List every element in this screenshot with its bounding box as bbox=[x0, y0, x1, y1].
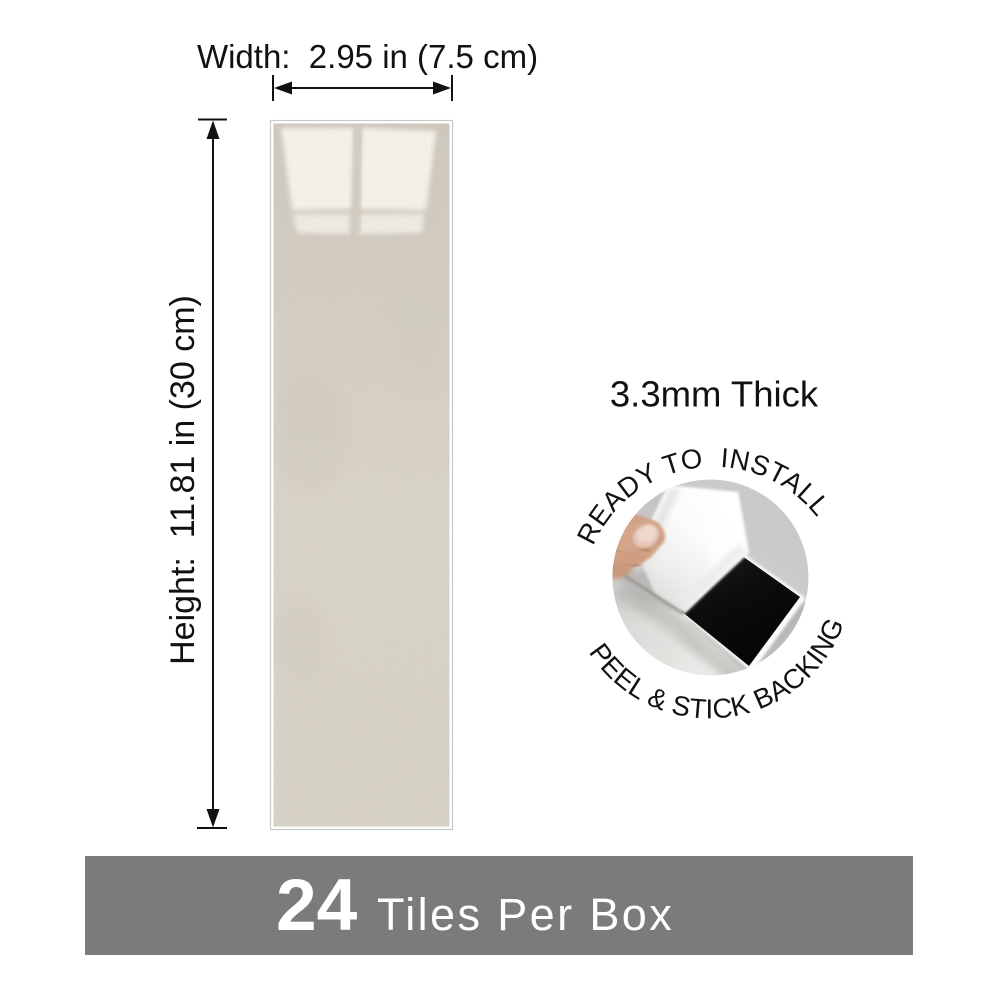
svg-text:Tiles Per Box: Tiles Per Box bbox=[377, 889, 674, 940]
svg-text:Height: 11.81 in (30 cm): Height: 11.81 in (30 cm) bbox=[164, 295, 202, 665]
svg-text:24: 24 bbox=[276, 865, 358, 946]
svg-text:Width: 2.95 in (7.5 cm): Width: 2.95 in (7.5 cm) bbox=[197, 38, 538, 75]
svg-text:3.3mm Thick: 3.3mm Thick bbox=[610, 374, 819, 415]
